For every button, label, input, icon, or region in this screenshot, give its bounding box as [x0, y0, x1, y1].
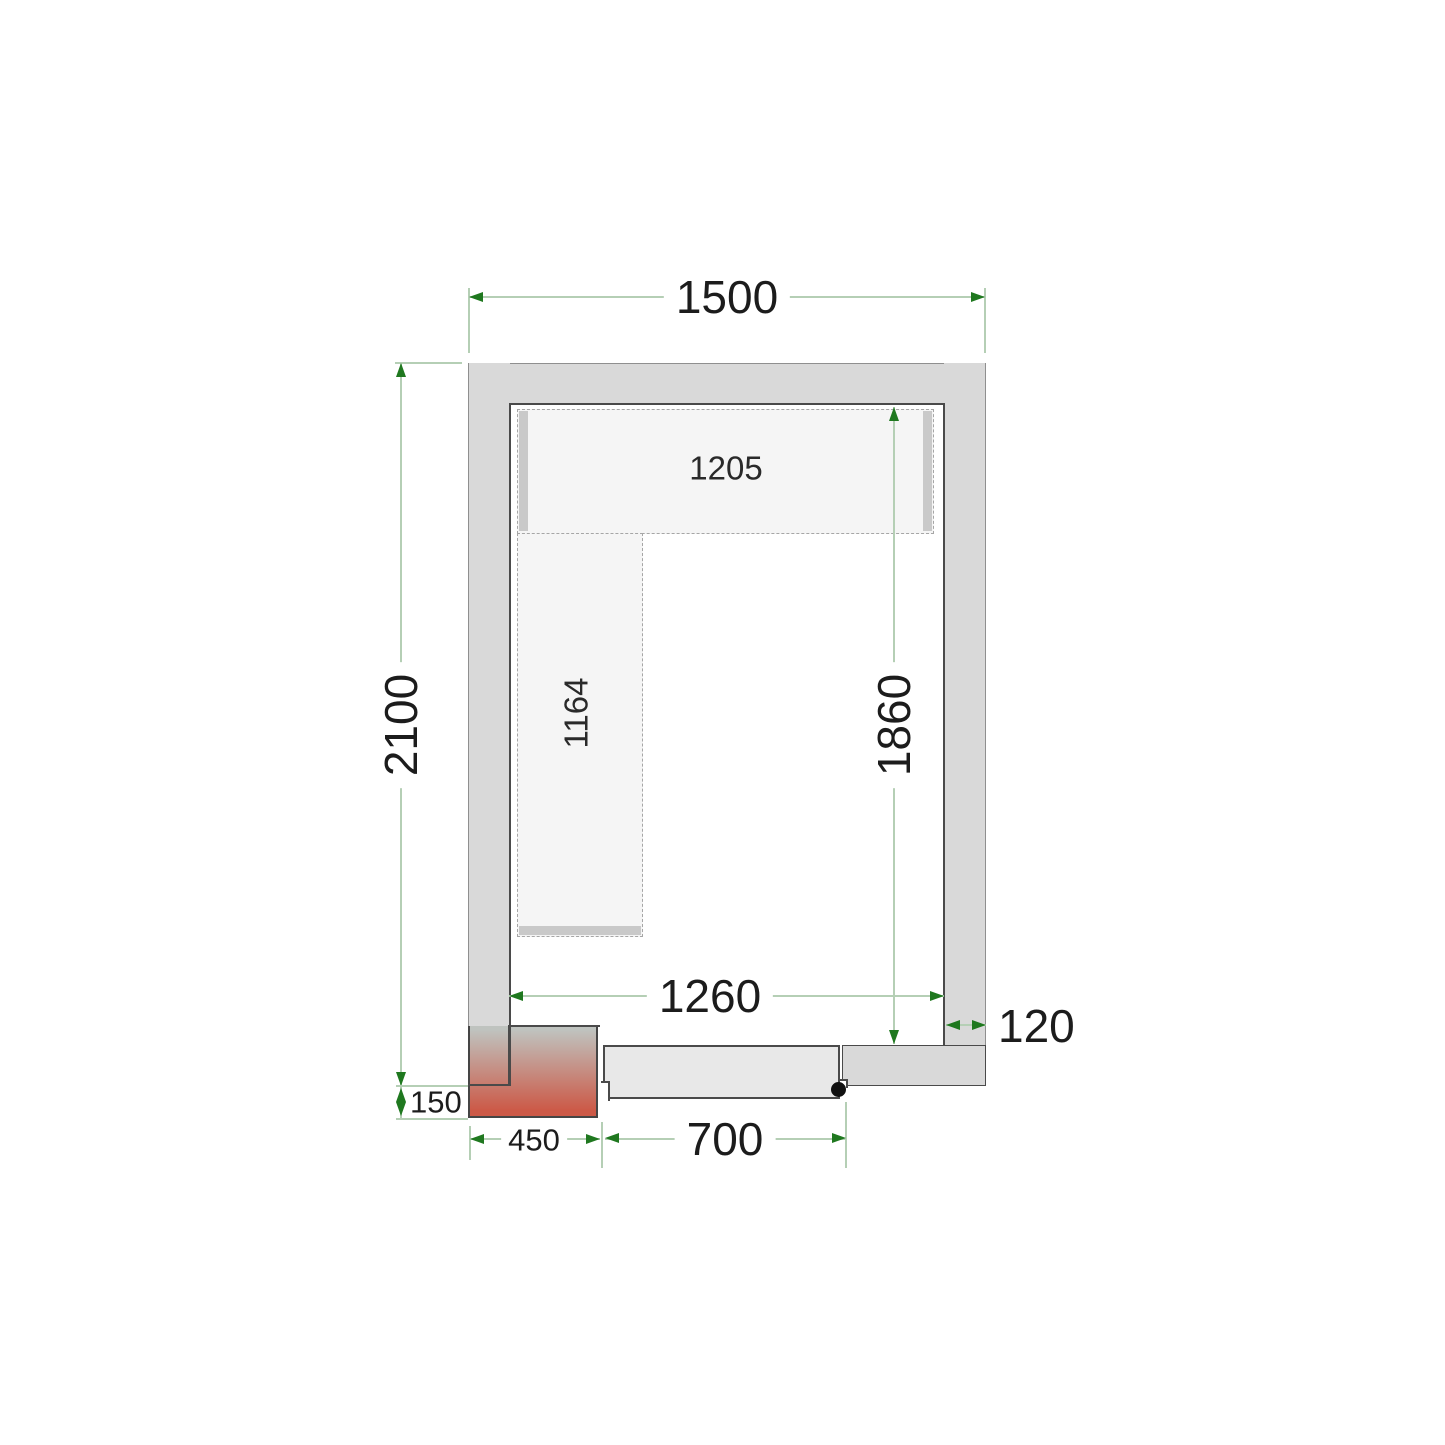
wall-left	[468, 363, 510, 1086]
inner-outline-top	[509, 403, 945, 405]
dim-frame-label: 450	[501, 1125, 567, 1158]
dim-door-arrow-right	[832, 1133, 846, 1143]
dim-inner-depth-label: 1860	[870, 662, 918, 788]
door-leaf	[603, 1045, 840, 1099]
dim-door-arrow-left	[605, 1133, 619, 1143]
wall-right	[944, 363, 986, 1086]
dim-outer-width-label: 1500	[664, 273, 790, 321]
inner-outline-left	[509, 403, 511, 1086]
floor-plan-canvas: 1205 1164 1500 2100 1860 1260 120 150 45…	[0, 0, 1445, 1445]
dim-inner-width-label: 1260	[647, 972, 773, 1020]
shelf-left-length-label: 1164	[560, 678, 595, 749]
dim-frame-arrow-right	[586, 1134, 600, 1144]
shelf-top-left-edge	[519, 411, 528, 531]
dim-outer-width-arrow-right	[971, 292, 985, 302]
wall-left-bottom-cap	[468, 1084, 510, 1086]
dim-inner-width-arrow-left	[509, 991, 523, 1001]
dim-frame-ext-right	[601, 1122, 603, 1168]
dim-inner-depth-arrow-bottom	[889, 1030, 899, 1044]
dim-frame-arrow-left	[470, 1134, 484, 1144]
shelf-top-length-label: 1205	[689, 452, 762, 487]
dim-protrusion-arrow-down	[396, 1102, 406, 1116]
heated-frame-top-edge	[508, 1025, 600, 1027]
dim-protrusion-arrow-up	[396, 1088, 406, 1102]
shelf-top-right-edge	[923, 411, 932, 531]
dim-wall-thickness-arrow-right	[972, 1020, 986, 1030]
wall-bottom-right	[842, 1045, 986, 1086]
dim-inner-width-arrow-right	[930, 991, 944, 1001]
dim-outer-depth-label: 2100	[377, 662, 425, 788]
dim-outer-depth-arrow-bottom	[396, 1072, 406, 1086]
wall-top	[468, 363, 986, 404]
dim-outer-depth-arrow-top	[396, 363, 406, 377]
dim-inner-depth-arrow-top	[889, 407, 899, 421]
dim-wall-thickness-arrow-left	[946, 1020, 960, 1030]
door-pivot-dot	[831, 1082, 846, 1097]
dim-outer-width-arrow-left	[469, 292, 483, 302]
door-hinge-notch	[601, 1081, 610, 1101]
inner-outline-right	[943, 403, 945, 1046]
dim-door-label: 700	[675, 1115, 776, 1163]
dim-wall-thickness-label: 120	[998, 1002, 1075, 1050]
heated-frame-block	[468, 1026, 598, 1118]
dim-protrusion-label: 150	[410, 1087, 462, 1120]
shelf-left-bottom-edge	[519, 926, 641, 935]
